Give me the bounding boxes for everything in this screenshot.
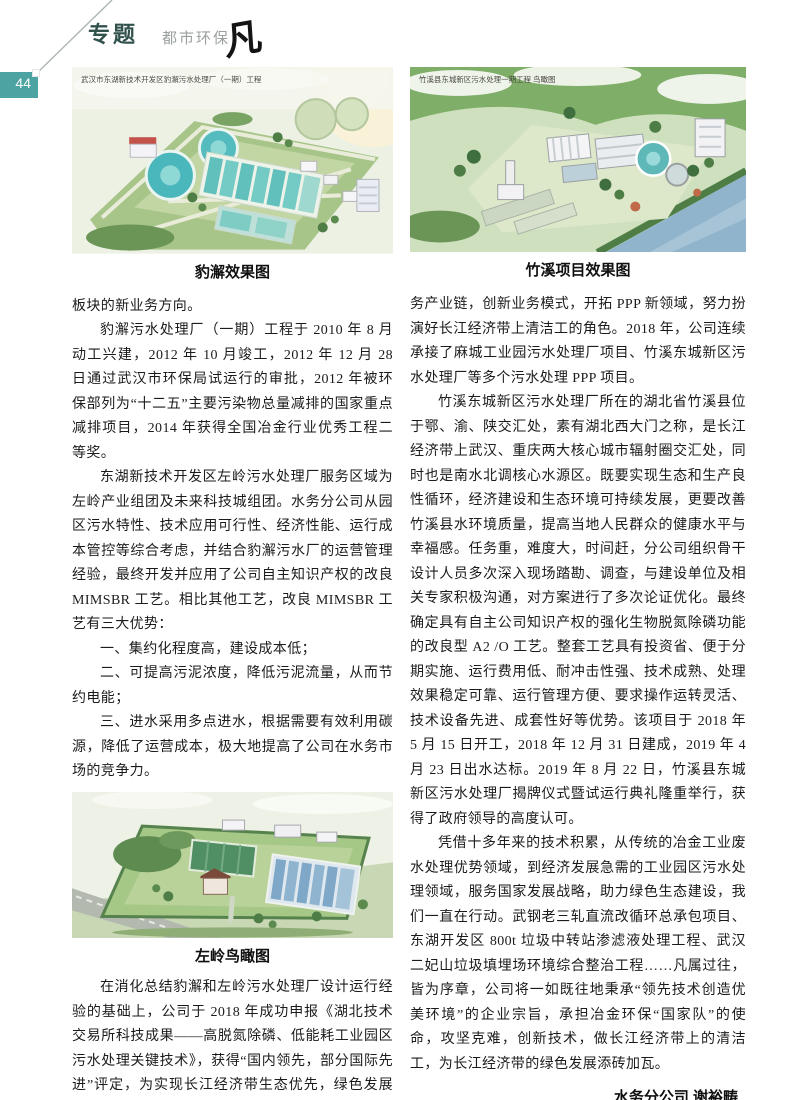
figure-baoxie: 武汉市东湖新技术开发区豹澥污水处理厂（一期）工程: [72, 67, 393, 254]
paragraph: 务产业链，创新业务模式，开拓 PPP 新领域，努力扮演好长江经济带上清洁工的角色…: [410, 293, 746, 391]
paragraph: 板块的新业务方向。: [72, 295, 393, 320]
paragraph: 一、集约化程度高，建设成本低；: [72, 638, 393, 663]
magazine-logo-glyph: 凡: [222, 5, 263, 67]
paragraph: 凭借十多年来的技术积累，从传统的冶金工业废水处理优势领域，到经济发展急需的工业园…: [410, 832, 746, 1077]
paragraph: 竹溪东城新区污水处理厂所在的湖北省竹溪县位于鄂、渝、陕交汇处，素有湖北西大门之称…: [410, 391, 746, 832]
zhuxi-aerial-illustration: 竹溪县东城新区污水处理一期工程 鸟瞰图: [410, 67, 746, 252]
zuoling-caption: 左岭鸟瞰图: [72, 945, 393, 966]
baoxie-overlay-title-text: 武汉市东湖新技术开发区豹澥污水处理厂（一期）工程: [81, 74, 262, 84]
magazine-name: 都市环保: [162, 27, 230, 48]
figure-zhuxi: 竹溪县东城新区污水处理一期工程 鸟瞰图: [410, 67, 746, 252]
paragraph: 豹澥污水处理厂（一期）工程于 2010 年 8 月动工兴建，2012 年 10 …: [72, 319, 393, 466]
magazine-page: 专题 都市环保 凡 44: [0, 0, 800, 1100]
zhuxi-overlay-title-text: 竹溪县东城新区污水处理一期工程 鸟瞰图: [419, 74, 556, 84]
baoxie-aerial-illustration: 武汉市东湖新技术开发区豹澥污水处理厂（一期）工程: [72, 67, 393, 254]
figure-zuoling: [72, 792, 393, 938]
paragraph: 三、进水采用多点进水，根据需要有效利用碳源，降低了运营成本，极大地提高了公司在水…: [72, 711, 393, 785]
right-paragraphs: 务产业链，创新业务模式，开拓 PPP 新领域，努力扮演好长江经济带上清洁工的角色…: [410, 293, 746, 1077]
paragraph: 东湖新技术开发区左岭污水处理厂服务区域为左岭产业组团及未来科技城组团。水务分公司…: [72, 466, 393, 638]
section-label: 专题: [88, 17, 138, 49]
page-number-notch: [33, 70, 39, 76]
left-paragraphs-top: 板块的新业务方向。豹澥污水处理厂（一期）工程于 2010 年 8 月动工兴建，2…: [72, 295, 393, 785]
paragraph: 二、可提高污泥浓度，降低污泥流量，从而节约电能；: [72, 662, 393, 711]
page-number: 44: [15, 75, 31, 91]
baoxie-caption: 豹澥效果图: [72, 261, 393, 282]
zuoling-aerial-illustration: [72, 792, 393, 938]
left-paragraphs-mid: 在消化总结豹澥和左岭污水处理厂设计运行经验的基础上，公司于 2018 年成功申报…: [72, 976, 393, 1100]
zhuxi-caption: 竹溪项目效果图: [410, 259, 746, 280]
left-column: 武汉市东湖新技术开发区豹澥污水处理厂（一期）工程 豹澥效果图 板块的新业务方向。…: [72, 67, 393, 1100]
paragraph: 在消化总结豹澥和左岭污水处理厂设计运行经验的基础上，公司于 2018 年成功申报…: [72, 976, 393, 1100]
right-column: 竹溪县东城新区污水处理一期工程 鸟瞰图 竹溪项目效果图 务产业链，创新业务模式，…: [410, 67, 746, 1100]
article-byline: 水务分公司 谢裕畴: [410, 1086, 738, 1100]
